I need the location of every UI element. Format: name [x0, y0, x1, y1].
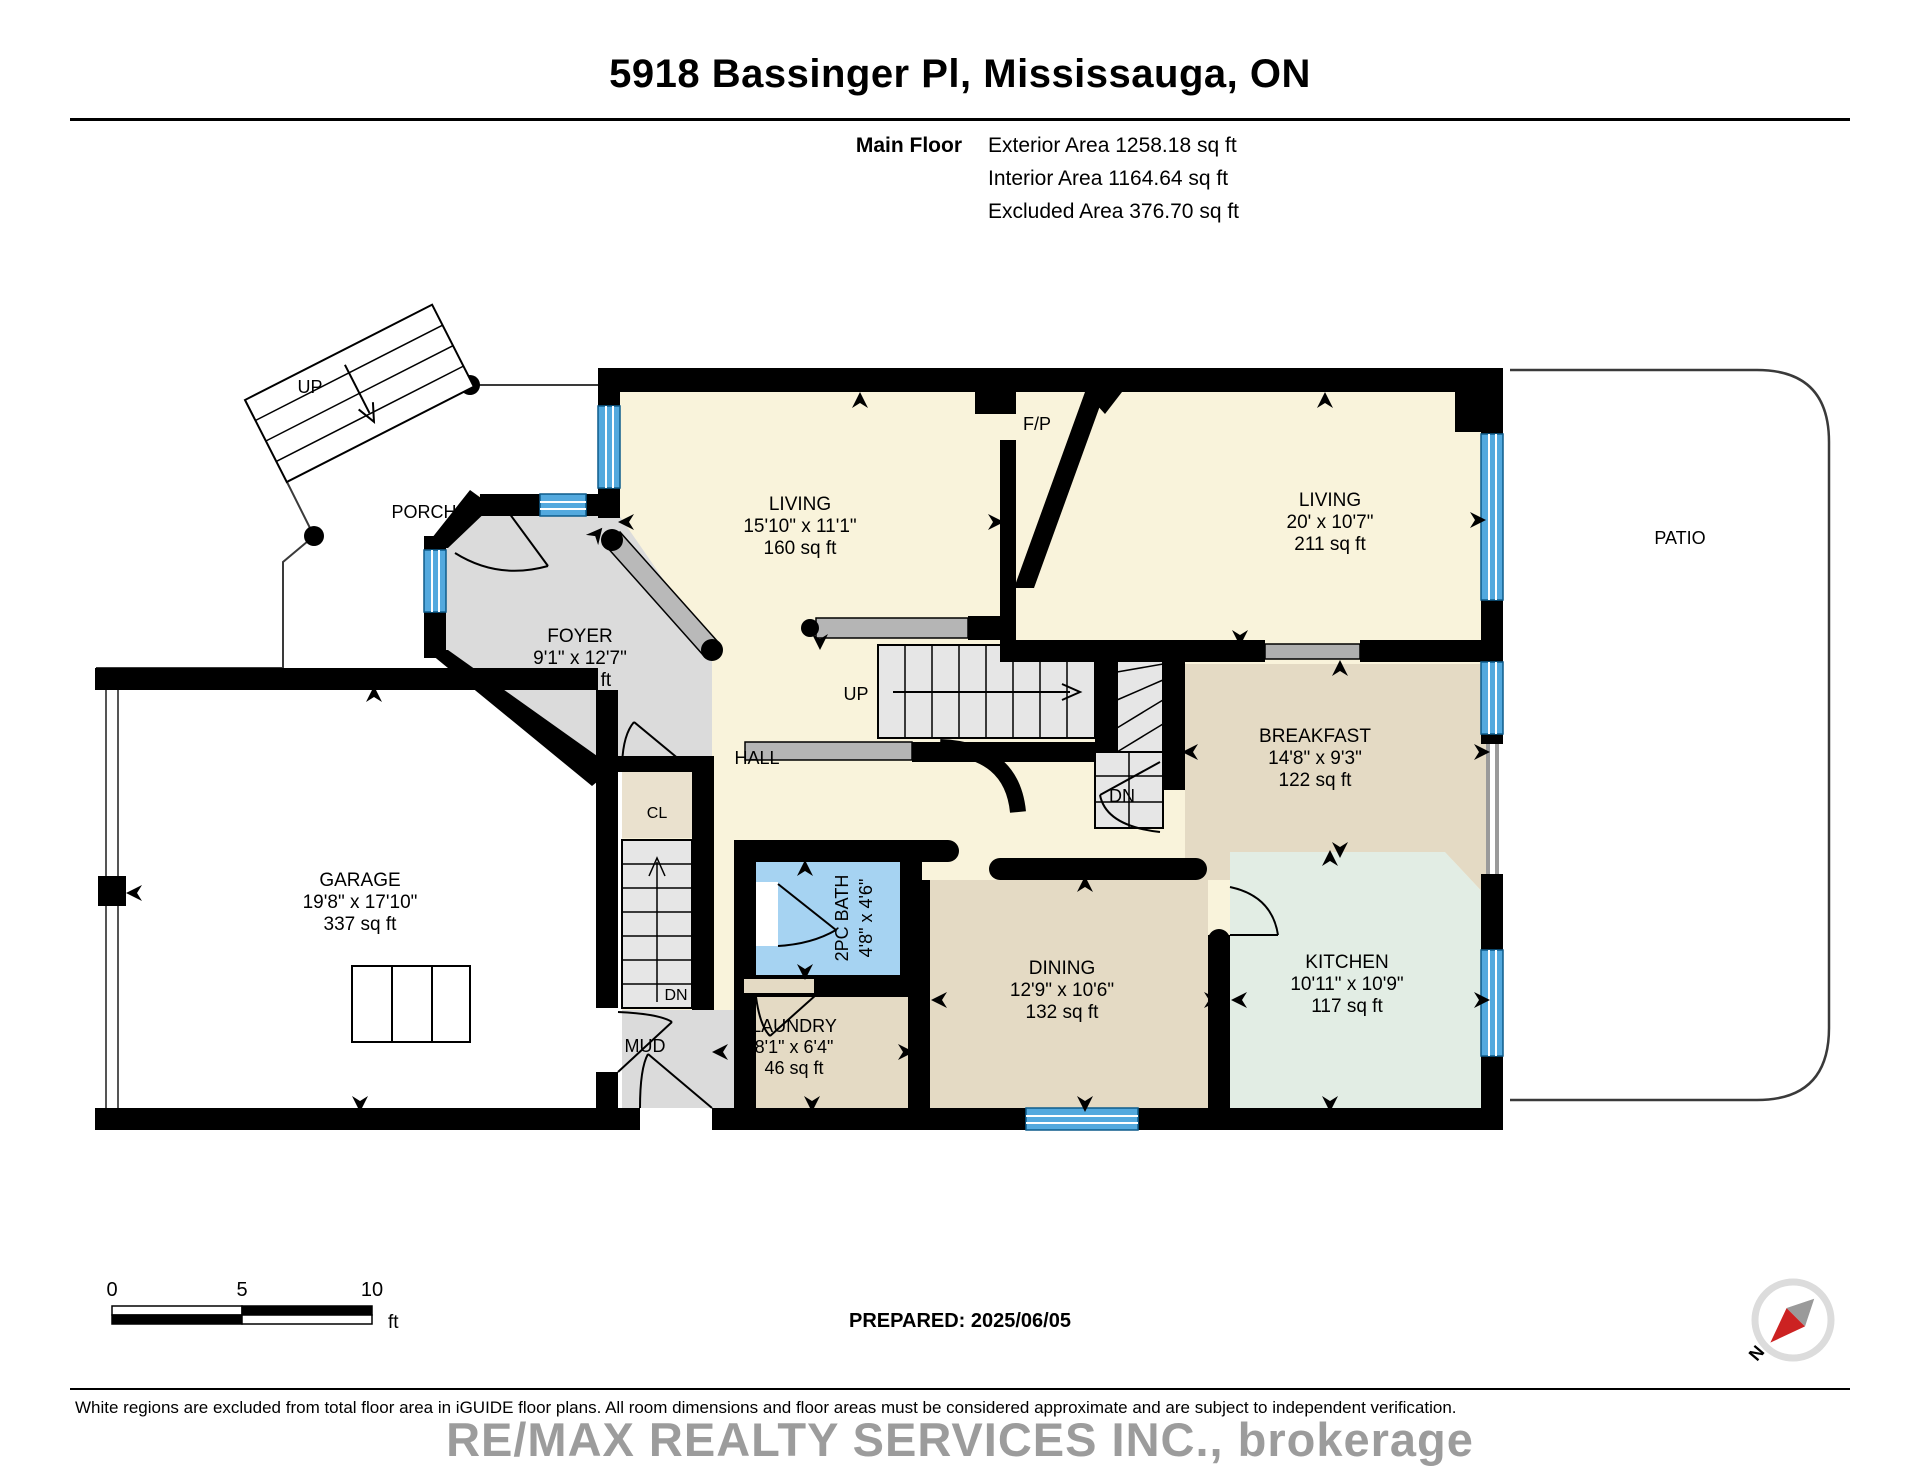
- living1-name: LIVING: [769, 494, 831, 515]
- breakfast-name: BREAKFAST: [1259, 726, 1371, 747]
- breakfast-area: 122 sq ft: [1279, 770, 1353, 791]
- garage-steps: [352, 966, 470, 1042]
- scale-10: 10: [361, 1279, 383, 1301]
- window-breakfast-right: [1481, 662, 1503, 734]
- window-foyer-left: [424, 550, 446, 612]
- floor-label: Main Floor: [700, 134, 962, 158]
- header-divider: [70, 118, 1850, 121]
- slider-living2-patio: [1265, 644, 1360, 659]
- dining-name: DINING: [1029, 958, 1096, 979]
- window-foyer-top: [540, 494, 586, 516]
- porch-stairs: [245, 305, 474, 482]
- kitchen-area: 117 sq ft: [1311, 996, 1383, 1017]
- kitchen-dims: 10'11" x 10'9": [1290, 974, 1403, 995]
- dining-area: 132 sq ft: [1026, 1002, 1100, 1023]
- dn-basement-label: DN: [664, 987, 687, 1004]
- up-stairs-label: UP: [843, 684, 868, 704]
- living1-area: 160 sq ft: [764, 538, 838, 559]
- scale-5: 5: [236, 1279, 247, 1301]
- prepared-date: PREPARED: 2025/06/05: [0, 1310, 1920, 1333]
- kitchen-name: KITCHEN: [1305, 952, 1388, 973]
- window-kitchen-right: [1481, 950, 1503, 1056]
- foyer-name: FOYER: [547, 626, 612, 647]
- garage-area: 337 sq ft: [324, 914, 398, 935]
- laundry-name: LAUNDRY: [751, 1016, 837, 1036]
- footer-divider: [70, 1388, 1850, 1390]
- interior-area: Interior Area 1164.64 sq ft: [988, 167, 1228, 191]
- up-porch-label: UP: [297, 377, 322, 397]
- bath-dims: 4'8" x 4'6": [856, 879, 876, 958]
- living2-dims: 20' x 10'7": [1287, 512, 1374, 533]
- window-living2-right: [1481, 434, 1503, 600]
- laundry-area: 46 sq ft: [764, 1058, 823, 1078]
- garage-name: GARAGE: [319, 870, 400, 891]
- laundry-dims: 8'1" x 6'4": [755, 1037, 834, 1057]
- foyer-area: 76 sq ft: [549, 670, 612, 691]
- brokerage-watermark: RE/MAX REALTY SERVICES INC., brokerage: [0, 1412, 1920, 1467]
- foyer-dims: 9'1" x 12'7": [533, 648, 627, 669]
- mud-label: MUD: [625, 1036, 666, 1056]
- window-living1-left: [598, 406, 620, 488]
- living2-name: LIVING: [1299, 490, 1361, 511]
- porch-label: PORCH: [391, 502, 456, 522]
- scale-0: 0: [106, 1279, 117, 1301]
- hall-label: HALL: [734, 748, 779, 768]
- patio-outline: [1510, 370, 1829, 1100]
- room-mud-fill: [622, 1010, 734, 1108]
- living1-dims: 15'10" x 11'1": [743, 516, 856, 537]
- window-dining-bottom: [1026, 1108, 1138, 1130]
- fireplace-label: F/P: [1023, 414, 1051, 434]
- page-title: 5918 Bassinger Pl, Mississauga, ON: [0, 52, 1920, 97]
- closet-label: CL: [647, 805, 668, 822]
- dn-breakfast-label: DN: [1109, 786, 1135, 806]
- patio-label: PATIO: [1654, 528, 1705, 548]
- bath-name: 2PC BATH: [832, 875, 852, 962]
- floor-plan-page: { "header": { "title": "5918 Bassinger P…: [0, 0, 1920, 1484]
- exterior-area: Exterior Area 1258.18 sq ft: [988, 134, 1237, 158]
- breakfast-dims: 14'8" x 9'3": [1268, 748, 1362, 769]
- living2-area: 211 sq ft: [1294, 534, 1366, 555]
- floor-plan-canvas: LIVING 15'10" x 11'1" 160 sq ft LIVING 2…: [0, 0, 1920, 1484]
- slider-breakfast-patio: [1488, 744, 1497, 874]
- excluded-area: Excluded Area 376.70 sq ft: [988, 200, 1239, 224]
- dining-dims: 12'9" x 10'6": [1010, 980, 1114, 1001]
- label-living2: LIVING 20' x 10'7" 211 sq ft: [1287, 490, 1374, 555]
- garage-dims: 19'8" x 17'10": [303, 892, 418, 913]
